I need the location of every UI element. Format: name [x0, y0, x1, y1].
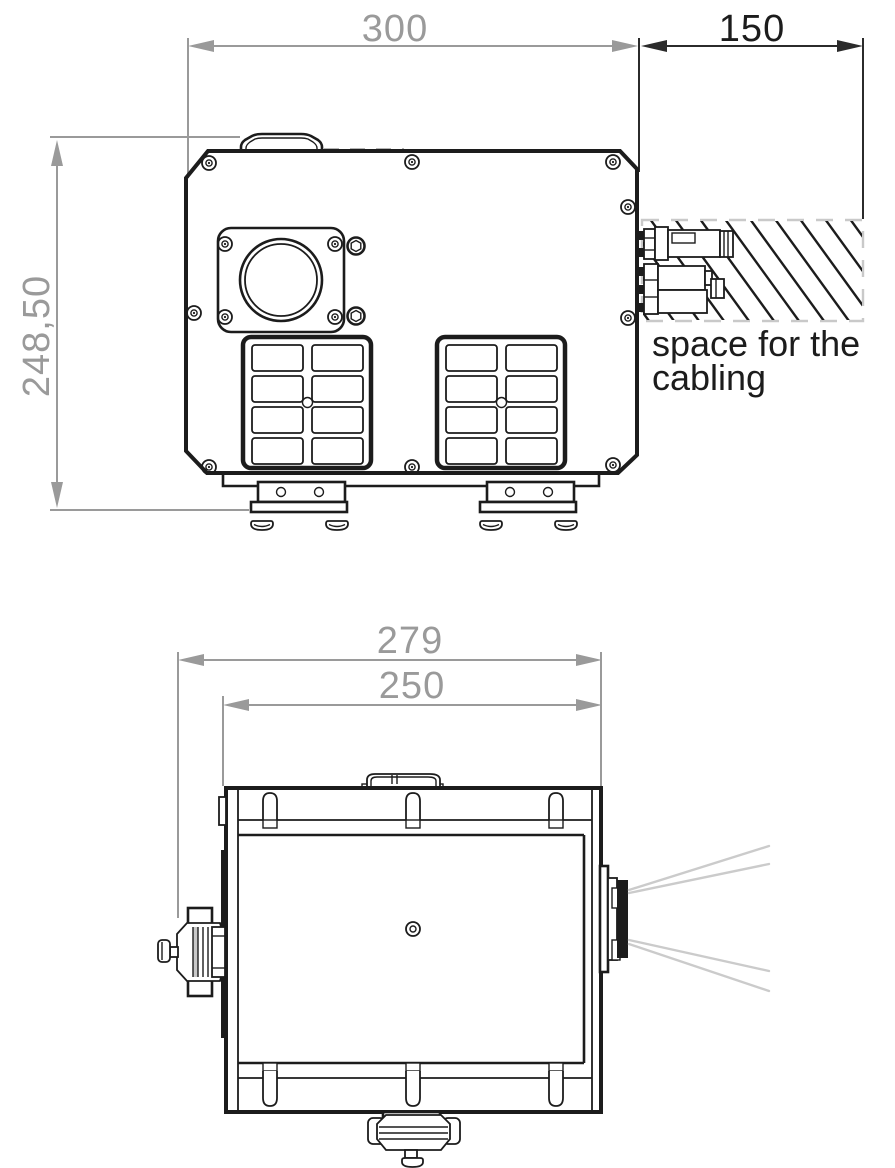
clip-icon — [549, 1063, 563, 1106]
screw-icon — [405, 155, 419, 169]
side-tab — [219, 797, 226, 825]
arrowhead — [51, 482, 63, 508]
connector-upper — [644, 227, 733, 260]
dim-overall-width-label: 279 — [377, 620, 443, 662]
hatch-lines — [575, 219, 895, 321]
dim-height-label: 248,50 — [16, 275, 58, 397]
lens-port-plate — [218, 228, 344, 332]
retaining-clips-top — [263, 793, 563, 828]
top-cap-topview — [362, 774, 443, 788]
hex-bolts — [348, 238, 365, 325]
dimension-drawing: 300 150 248,50 — [0, 0, 895, 1168]
arrowhead — [837, 40, 863, 52]
screw-icon — [202, 156, 216, 170]
arrowhead — [188, 40, 214, 52]
screw-icon — [606, 458, 620, 472]
mounting-foot-right — [480, 482, 577, 530]
arrowhead — [51, 140, 63, 166]
clip-icon — [406, 1063, 420, 1106]
top-view: 279 250 — [158, 620, 769, 1167]
clip-icon — [263, 1063, 277, 1106]
vent-grille-left — [243, 337, 371, 468]
top-cap — [241, 134, 322, 151]
arrowhead — [178, 654, 204, 666]
top-dim-body: 250 — [223, 665, 602, 786]
front-dim-cabling-space: 150 — [641, 8, 863, 219]
mounting-foot-left — [251, 482, 348, 530]
dim-body-width-label: 250 — [379, 665, 445, 707]
knob-pin-stem — [405, 1150, 417, 1158]
cable-connectors — [637, 227, 733, 314]
front-view: 300 150 248,50 — [16, 8, 895, 530]
screw-icon — [606, 155, 620, 169]
lens-assembly — [600, 866, 628, 972]
clip-icon — [406, 793, 420, 828]
cabling-note-line2: cabling — [652, 357, 766, 398]
arrowhead — [641, 40, 667, 52]
front-dim-height: 248,50 — [16, 137, 249, 510]
dim-width-label: 300 — [362, 8, 428, 50]
retaining-clips-bottom — [263, 1063, 563, 1106]
arrowhead — [612, 40, 638, 52]
adjustment-knob-left — [158, 908, 225, 996]
knob-pin-head — [402, 1158, 423, 1167]
vent-grille-right — [437, 337, 565, 468]
screw-icon — [621, 311, 635, 325]
arrowhead — [576, 699, 602, 711]
center-screw-hole — [406, 922, 420, 936]
clip-icon — [263, 793, 277, 828]
light-rays — [629, 846, 769, 991]
adjustment-knob-bottom — [368, 1112, 460, 1167]
knob-pin-head — [158, 940, 170, 962]
screw-icon — [187, 306, 201, 320]
knob-bracket — [212, 927, 225, 977]
lens-element — [617, 880, 628, 958]
arrowhead — [223, 699, 249, 711]
cabling-space-hatch — [575, 219, 895, 321]
screw-icon — [621, 200, 635, 214]
arrowhead — [576, 654, 602, 666]
dim-cabling-label: 150 — [719, 8, 785, 50]
cabling-note: space for the cabling — [652, 323, 860, 398]
knob-pin-stem — [170, 947, 178, 957]
clip-icon — [549, 793, 563, 828]
technical-drawing-page: 300 150 248,50 — [0, 0, 895, 1168]
